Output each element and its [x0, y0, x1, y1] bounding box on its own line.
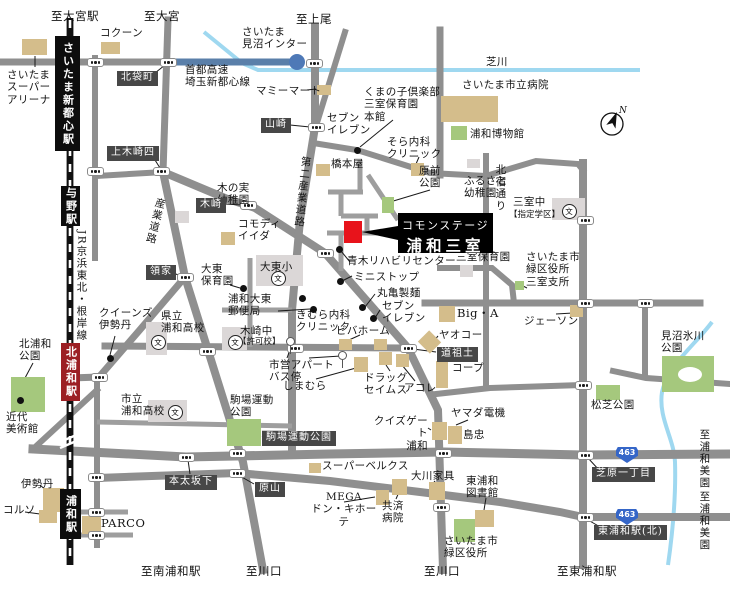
park-harasaki — [382, 197, 394, 213]
mimuro-chugakko: 三室中 — [513, 196, 546, 208]
crossing-icon — [433, 503, 450, 512]
crossing-icon — [91, 373, 108, 382]
xing-yamazaki: 山崎 — [261, 118, 291, 133]
minuma-hikawa-koen: 見沼氷川 公園 — [661, 330, 705, 355]
aoki-rehabili-center: 青木リハビリセンター — [347, 255, 456, 267]
okawa-kagu: 大川家具 — [411, 470, 455, 482]
crossing-icon — [229, 449, 246, 458]
poi-dot — [354, 147, 361, 154]
bld-co-op — [436, 361, 448, 388]
drug-seims: ドラッグ セイムス — [364, 372, 408, 397]
big-a: Big・A — [457, 307, 499, 321]
xing-saido: 道祖土 — [437, 347, 478, 362]
marugame-seimen: 丸亀製麺 — [377, 287, 421, 299]
higashi-urawa-toshokan: 東浦和 図書館 — [466, 475, 499, 500]
crossing-icon — [87, 58, 104, 67]
bus-stop-icon — [338, 351, 347, 368]
to-omiya-sta: 至大宮駅 — [51, 10, 99, 24]
park-kita-urawa — [11, 377, 45, 412]
crossing-icon — [153, 167, 170, 176]
mamy-mart: マミーマート — [256, 85, 321, 97]
poi-dot — [17, 397, 24, 404]
crossing-icon — [199, 347, 216, 356]
kizaki-chugakko: 木崎中 — [240, 325, 273, 337]
crossing-icon — [177, 273, 194, 282]
xing-motobuto-sakashita: 本太坂下 — [165, 475, 217, 490]
to-minami-urawa-sta: 至南浦和駅 — [141, 565, 201, 579]
cocoon: コクーン — [100, 27, 143, 39]
bld-shimachu — [448, 426, 462, 444]
xing-harayama: 原山 — [255, 482, 285, 497]
to-kawaguchi-east: 至川口 — [424, 565, 460, 579]
co-op: コープ — [452, 362, 484, 374]
park-komaba — [227, 419, 261, 446]
super-belx: スーパーベルクス — [322, 460, 409, 472]
bld-viva-home-2 — [374, 339, 387, 350]
commodi-iida: コモディ イイダ — [238, 218, 281, 243]
jr-keihin-tohoku-negishi-line: JR京浜東北・根岸線 — [75, 230, 87, 341]
bld-okawa-kagu — [429, 482, 445, 500]
crossing-icon — [306, 59, 323, 68]
crossing-icon — [637, 299, 654, 308]
bld-viva-home-1 — [339, 339, 352, 350]
saitama-midori-kuyakusho: さいたま市 緑区役所 — [444, 535, 498, 560]
site-callout: コモンステージ 浦和三室 — [398, 213, 493, 253]
saitama-city-hospital: さいたま市立病院 — [462, 79, 549, 91]
xing-kizaki: 木崎 — [196, 198, 226, 213]
crossing-icon — [88, 531, 105, 540]
bld-quiz-gate — [432, 422, 447, 440]
bld-kyosai-byoin — [392, 479, 407, 495]
bld-super-belx — [309, 463, 321, 473]
bld-shimamura — [354, 357, 368, 372]
ministop: ミニストップ — [354, 271, 419, 283]
corso: コルソ — [3, 504, 36, 516]
sora-naika-clinic: そら内科 クリニック — [387, 136, 442, 161]
poi-dot — [370, 315, 377, 322]
crossing-icon — [160, 58, 177, 67]
jason: ジェーソン — [524, 315, 579, 327]
shiei-apart-busstop: 市営アパート バス停 — [269, 359, 334, 384]
bld-mimuro-hoikuen — [460, 265, 473, 277]
bld-mimuro-shisho — [515, 281, 524, 290]
busstop-komaba-undo-koen: 駒場運動公園 — [262, 431, 336, 446]
minuma-interchange-icon — [289, 54, 305, 70]
bld-cocoon — [101, 42, 120, 54]
crossing-icon — [178, 453, 195, 462]
poi-dot — [336, 246, 343, 253]
crossing-icon — [229, 469, 246, 478]
minuma-pond — [678, 367, 702, 382]
shimachu: 島忠 — [463, 429, 485, 441]
shibakawa-river: 芝川 — [486, 56, 508, 68]
urawa-museum: 浦和博物館 — [470, 128, 525, 140]
daito-hoikuen: 大東 保育園 — [201, 263, 234, 288]
crossing-icon — [88, 473, 105, 482]
site-name-line2: 浦和三室 — [398, 234, 493, 256]
station-saitama-shintoshin: さいたま新都心駅 — [55, 36, 80, 151]
to-urawa-misono-lower: 至浦和美園 — [698, 491, 710, 551]
school-icon: 文 — [562, 204, 577, 219]
poi-dot — [299, 295, 306, 302]
hashimotoya: 橋本屋 — [331, 158, 364, 170]
park-urawa-museum — [451, 126, 467, 140]
to-omiya: 至大宮 — [144, 10, 180, 24]
xing-ryoke: 領家 — [146, 265, 176, 280]
crossing-icon — [317, 249, 334, 258]
site-location-marker — [344, 221, 362, 243]
poi-dot — [359, 304, 366, 311]
poi-dot — [240, 285, 247, 292]
bld-saitama-super-arena — [22, 39, 47, 55]
kizaki-chu-kyokako: 【許可校】 — [238, 337, 281, 347]
kyosai-byoin: 共済 病院 — [382, 500, 404, 525]
station-kita-urawa: 北浦和駅 — [61, 343, 80, 401]
crossing-icon — [400, 344, 417, 353]
crossing-icon — [575, 381, 592, 390]
xing-shibahara-itchome: 芝原一丁目 — [592, 467, 655, 482]
compass-icon: N — [592, 102, 632, 142]
poi-dot — [107, 355, 114, 362]
school-icon: 文 — [151, 335, 166, 350]
acole: アコレ — [404, 382, 437, 394]
to-kawaguchi-west: 至川口 — [246, 565, 282, 579]
crossing-icon — [577, 513, 594, 522]
seven-eleven-saido: セブン イレブン — [382, 300, 426, 325]
bld-drug-seims — [379, 352, 392, 365]
bld-corso — [39, 510, 57, 523]
bld-acole — [396, 354, 409, 367]
crossing-icon — [577, 216, 594, 225]
bld-city-hospital — [441, 96, 498, 122]
crossing-icon — [435, 449, 452, 458]
shuto-expressway: 首都高速 埼玉新都心線 — [185, 64, 250, 89]
bld-commodi-iida — [221, 232, 235, 245]
yamada-denki: ヤマダ電機 — [451, 407, 506, 419]
harasaki-koen: 原前 公園 — [419, 165, 441, 190]
komaba-undo-koen: 駒場運動 公園 — [230, 394, 274, 419]
bld-kinomi-yochien — [175, 211, 189, 223]
crossing-icon — [577, 451, 594, 460]
compass-north-label: N — [618, 106, 628, 116]
site-name-line1: コモンステージ — [398, 217, 493, 233]
yaoko: ヤオコー — [439, 329, 483, 341]
kumanoko-mimuro-hoikuen: くまの子倶楽部 三室保育園 本館 — [364, 86, 440, 123]
crossing-icon — [577, 299, 594, 308]
area-map: コモンステージ 浦和三室 N さいたま新都心駅与野駅北浦和駅浦和駅至大宮駅至大宮… — [0, 0, 730, 600]
xing-kamikizaki4: 上木崎四 — [107, 146, 159, 161]
kindai-bijutsukan: 近代 美術館 — [6, 411, 39, 436]
poi-dot — [337, 278, 344, 285]
bld-furusato-yochien — [467, 159, 480, 168]
crossing-icon — [87, 167, 104, 176]
saitama-super-arena: さいたま スーパー アリーナ — [7, 69, 51, 106]
school-icon: 文 — [168, 405, 183, 420]
quiz-gate-urawa: クイズゲート 浦和 — [371, 415, 428, 452]
kita-urawa-koen: 北浦和 公園 — [19, 338, 52, 363]
matsushiba-koen: 松芝公園 — [591, 399, 635, 411]
to-higashi-urawa-sta: 至東浦和駅 — [557, 565, 617, 579]
bus-stop-icon — [286, 337, 295, 354]
furusato-yochien: ふるさと 幼稚園 — [464, 175, 508, 200]
park-matsushiba — [596, 385, 620, 400]
queens-isetan: クイーンズ 伊勢丹 — [99, 307, 153, 332]
urawa-daito-post-office: 浦和大東 郵便局 — [228, 293, 272, 318]
xing-higashi-urawa-kita: 東浦和駅(北) — [594, 525, 667, 540]
crossing-icon — [308, 123, 325, 132]
midori-kuyakusho-mimuro-shisho: さいたま市 緑区役所 三室支所 — [526, 251, 580, 288]
kenritsu-urawa-koko: 県立 浦和高校 — [161, 310, 205, 335]
bld-library — [475, 510, 494, 527]
mimuro-chu-shitei-gakku: 【指定学区】 — [509, 210, 560, 220]
to-ageo: 至上尾 — [296, 13, 332, 27]
bld-big-a — [439, 306, 455, 322]
mega-don-quijote: MEGA ドン・キホーテ — [309, 491, 379, 528]
parco: PARCO — [101, 517, 145, 531]
station-urawa: 浦和駅 — [60, 489, 81, 539]
daito-shogakko: 大東小 — [260, 261, 293, 273]
to-urawa-misono-upper: 至浦和美園 — [698, 429, 710, 489]
bld-hashimotoya — [316, 164, 330, 176]
xing-kitabukuro: 北袋町 — [117, 71, 158, 86]
isetan: 伊勢丹 — [21, 478, 54, 490]
kimura-naika-clinic: きむら内科 クリニック — [296, 309, 351, 334]
saitama-minuma-ic: さいたま 見沼インター — [242, 26, 307, 51]
station-yono: 与野駅 — [61, 186, 80, 226]
shiritsu-urawa-koko: 市立 浦和高校 — [121, 393, 165, 418]
